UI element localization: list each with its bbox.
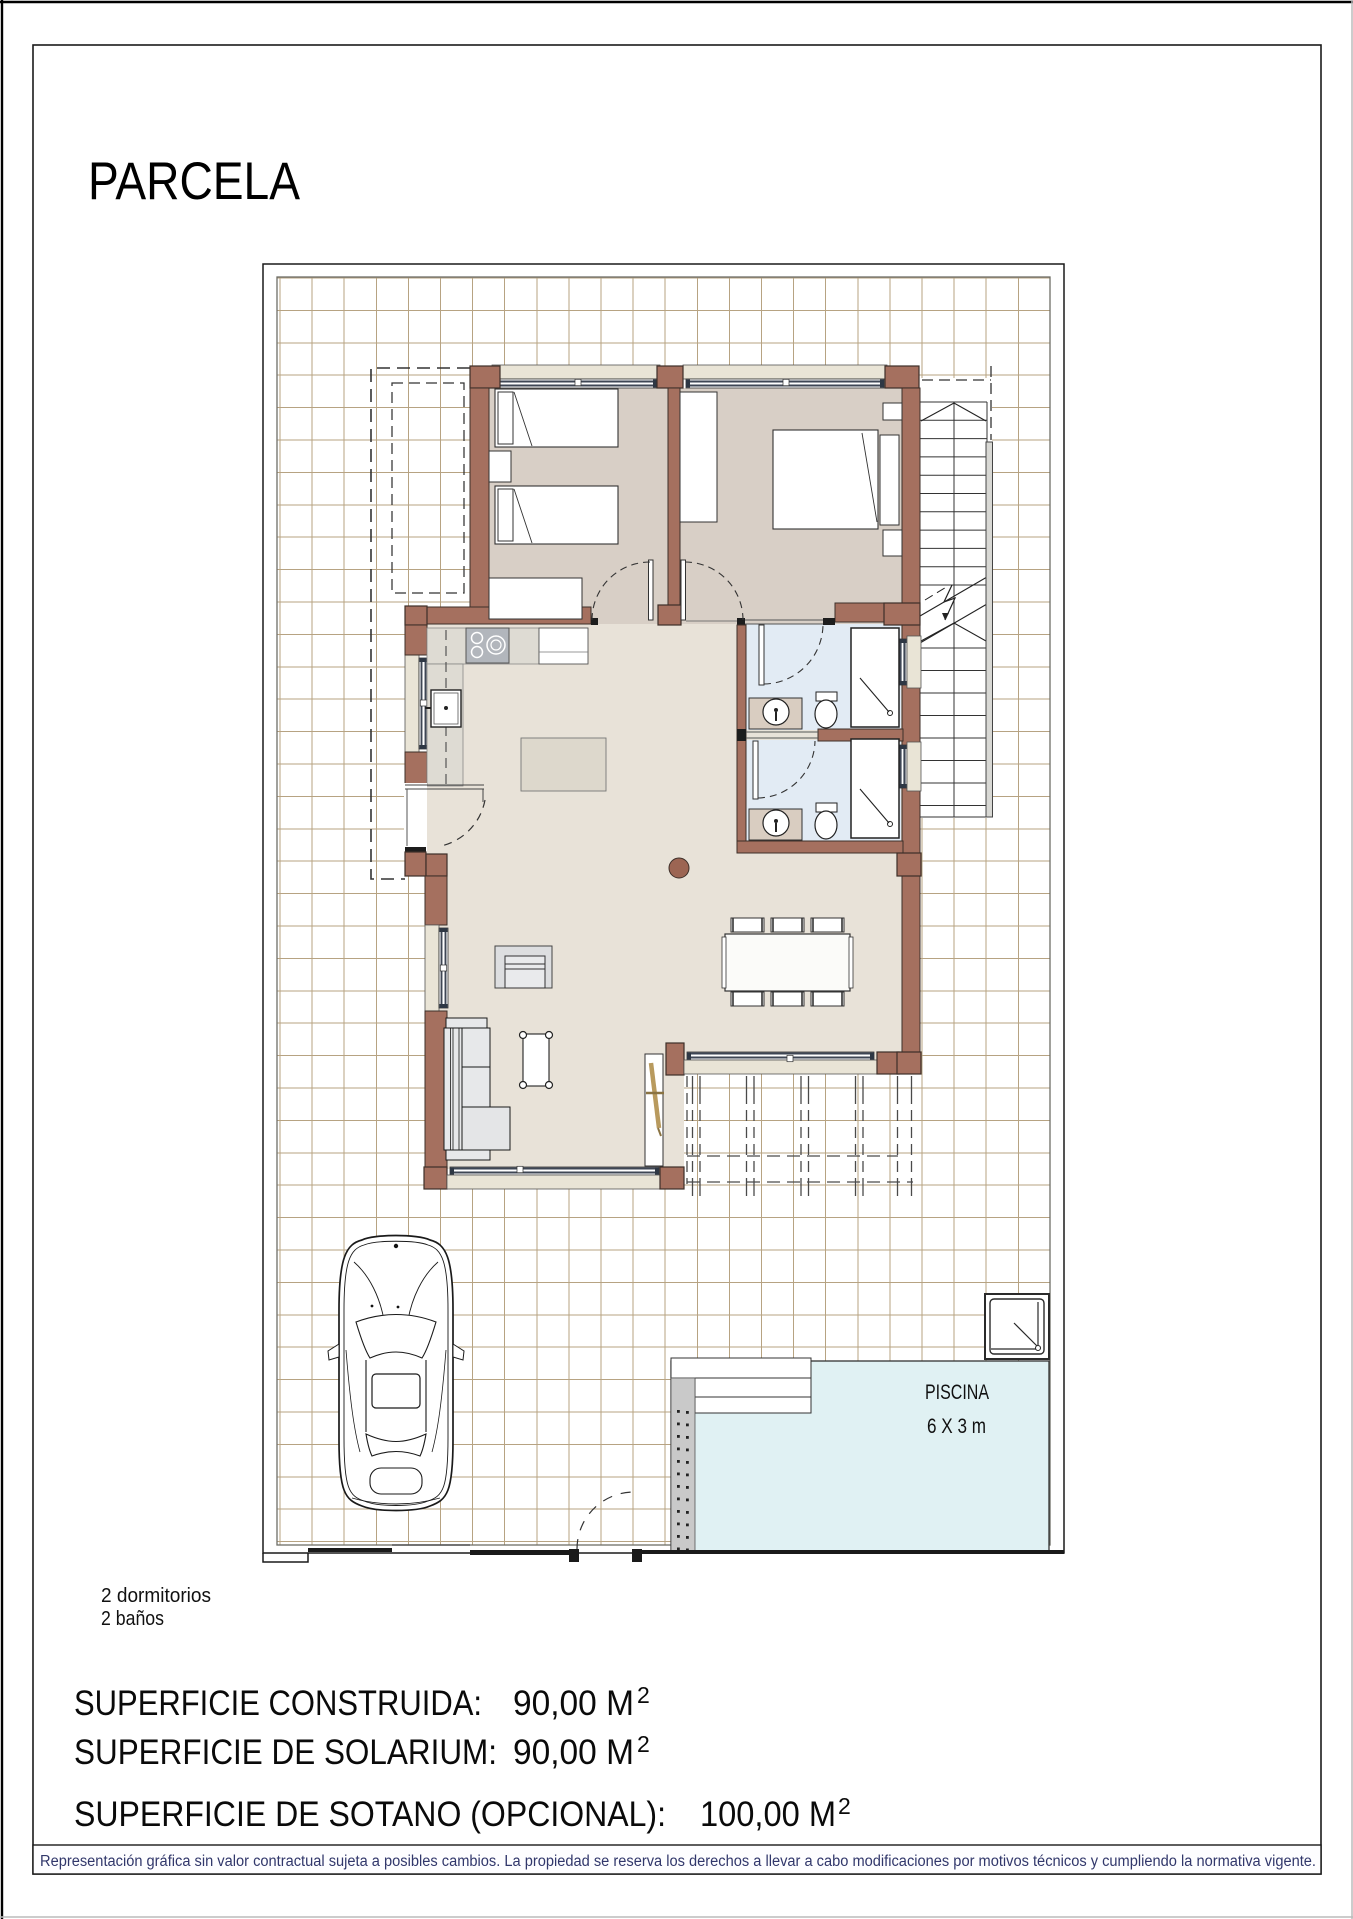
svg-text:PISCINA: PISCINA — [925, 1381, 989, 1404]
svg-text:90,00 M: 90,00 M — [513, 1733, 634, 1772]
svg-text:SUPERFICIE DE SOLARIUM:: SUPERFICIE DE SOLARIUM: — [74, 1733, 497, 1772]
svg-text:2: 2 — [838, 1793, 851, 1819]
svg-text:100,00 M: 100,00 M — [700, 1795, 836, 1834]
svg-text:90,00 M: 90,00 M — [513, 1684, 634, 1723]
svg-text:6 X 3 m: 6 X 3 m — [927, 1415, 986, 1438]
svg-text:2 baños: 2 baños — [101, 1608, 164, 1630]
svg-text:PARCELA: PARCELA — [88, 152, 301, 211]
svg-text:2: 2 — [637, 1731, 650, 1757]
svg-text:2: 2 — [637, 1682, 650, 1708]
svg-text:2 dormitorios: 2 dormitorios — [101, 1585, 211, 1607]
svg-text:SUPERFICIE DE SOTANO (OPCIONAL: SUPERFICIE DE SOTANO (OPCIONAL): — [74, 1795, 666, 1834]
svg-text:Representación gráfica sin val: Representación gráfica sin valor contrac… — [40, 1853, 1316, 1870]
svg-text:SUPERFICIE CONSTRUIDA:: SUPERFICIE CONSTRUIDA: — [74, 1684, 482, 1723]
